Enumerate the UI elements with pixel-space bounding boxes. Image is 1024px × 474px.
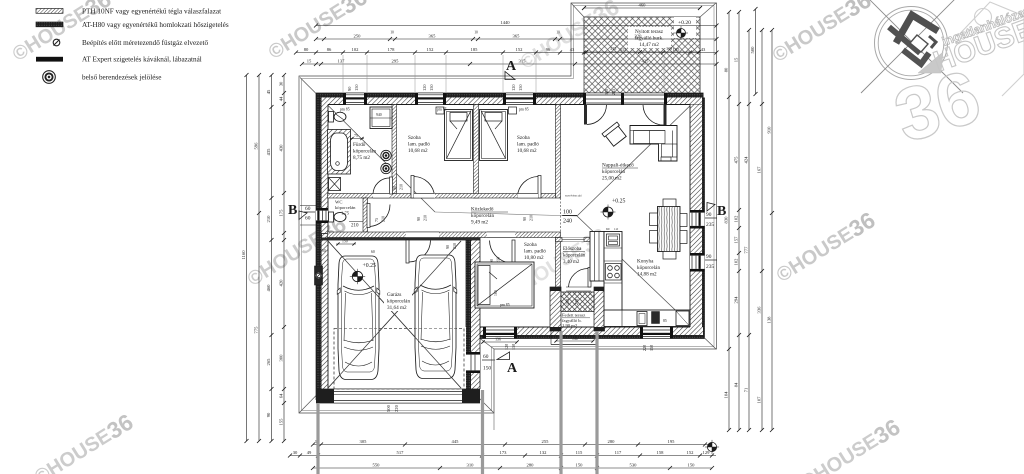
svg-text:500: 500	[750, 46, 755, 54]
svg-text:210: 210	[574, 299, 579, 305]
svg-text:1160: 1160	[241, 250, 246, 260]
svg-text:178: 178	[388, 47, 396, 52]
svg-text:130: 130	[572, 337, 578, 341]
svg-text:336: 336	[756, 306, 761, 314]
svg-text:Fürdő: Fürdő	[353, 142, 366, 148]
svg-text:102: 102	[733, 258, 738, 266]
svg-text:60: 60	[371, 250, 375, 254]
svg-text:75: 75	[374, 218, 379, 222]
svg-text:129: 129	[703, 450, 711, 455]
svg-text:10: 10	[556, 31, 560, 35]
svg-text:102: 102	[352, 47, 360, 52]
svg-text:A: A	[506, 59, 517, 74]
svg-text:köporcelán: köporcelán	[563, 254, 586, 259]
svg-text:320: 320	[604, 89, 609, 95]
svg-text:460: 460	[639, 2, 647, 7]
svg-text:71: 71	[743, 387, 748, 392]
svg-text:64: 64	[278, 393, 283, 398]
svg-text:240: 240	[563, 219, 572, 225]
svg-text:Szoba: Szoba	[408, 135, 421, 141]
svg-text:104: 104	[723, 391, 728, 399]
svg-text:köporcelán: köporcelán	[353, 149, 376, 155]
svg-text:173: 173	[500, 450, 508, 455]
svg-text:Közlekedő: Közlekedő	[471, 207, 494, 213]
svg-text:596: 596	[253, 142, 258, 150]
svg-text:14,47 m2: 14,47 m2	[639, 42, 659, 48]
svg-text:152: 152	[516, 47, 524, 52]
svg-text:155: 155	[278, 418, 283, 426]
svg-text:Szoba: Szoba	[524, 242, 537, 248]
svg-text:A: A	[507, 361, 518, 376]
svg-text:150: 150	[511, 344, 516, 350]
svg-text:102: 102	[733, 215, 738, 223]
svg-text:96: 96	[546, 47, 551, 52]
svg-text:25,00 m2: 25,00 m2	[602, 176, 622, 182]
svg-text:85: 85	[663, 319, 667, 323]
svg-text:90: 90	[445, 245, 450, 249]
svg-text:lam. padló: lam. padló	[408, 142, 430, 148]
svg-text:90: 90	[706, 212, 712, 218]
svg-text:152: 152	[427, 47, 435, 52]
svg-text:420: 420	[278, 279, 283, 287]
svg-text:8,75 m2: 8,75 m2	[353, 155, 370, 161]
svg-text:136: 136	[495, 338, 501, 342]
svg-text:157: 157	[733, 236, 738, 244]
svg-text:belső berendezések jelölése: belső berendezések jelölése	[82, 74, 161, 82]
svg-text:220: 220	[642, 345, 647, 351]
svg-text:pm 85: pm 85	[500, 303, 510, 307]
svg-text:60: 60	[606, 227, 610, 231]
svg-text:10: 10	[390, 31, 394, 35]
svg-text:80: 80	[304, 47, 309, 52]
svg-text:60: 60	[305, 206, 311, 212]
svg-text:235: 235	[706, 222, 714, 228]
svg-text:435: 435	[266, 148, 271, 156]
svg-text:365: 365	[513, 33, 521, 38]
svg-text:AT-H80 vagy egyenértékű homlok: AT-H80 vagy egyenértékű homlokzati hőszi…	[82, 21, 229, 29]
svg-text:60: 60	[305, 216, 311, 222]
svg-text:775: 775	[253, 326, 258, 334]
svg-text:köporcelán: köporcelán	[387, 299, 410, 305]
svg-text:777: 777	[743, 246, 748, 254]
svg-text:910: 910	[766, 126, 771, 134]
svg-text:150: 150	[688, 462, 696, 467]
svg-text:150: 150	[429, 84, 434, 91]
svg-text:10,80 m2: 10,80 m2	[524, 255, 544, 261]
svg-text:210: 210	[266, 215, 271, 223]
svg-text:31,64 m2: 31,64 m2	[387, 305, 407, 311]
svg-text:75: 75	[354, 134, 358, 138]
svg-text:49: 49	[307, 450, 312, 455]
svg-text:550: 550	[373, 462, 381, 467]
svg-text:305: 305	[360, 439, 368, 444]
svg-text:137: 137	[338, 58, 346, 63]
svg-text:105: 105	[673, 47, 681, 52]
svg-text:lam. padló: lam. padló	[524, 249, 546, 255]
svg-text:43: 43	[570, 47, 575, 52]
svg-text:szerelvény ajtó: szerelvény ajtó	[565, 195, 582, 198]
svg-text:150: 150	[518, 84, 523, 91]
svg-text:120: 120	[422, 84, 427, 91]
svg-text:117: 117	[615, 450, 622, 455]
svg-text:Nappali-étkező: Nappali-étkező	[602, 163, 634, 169]
svg-text:132: 132	[540, 450, 548, 455]
svg-text:14,88 m2: 14,88 m2	[637, 272, 657, 278]
svg-text:235: 235	[611, 89, 616, 95]
svg-text:107: 107	[756, 396, 761, 404]
svg-text:PTH 10NF vagy egyenértékű tégl: PTH 10NF vagy egyenértékű tégla válaszfa…	[82, 7, 221, 15]
svg-text:940: 940	[376, 113, 382, 117]
svg-text:150: 150	[342, 240, 348, 244]
svg-text:152: 152	[687, 450, 695, 455]
svg-text:Beépítés előtt méretezendő füs: Beépítés előtt méretezendő füstgáz elvez…	[82, 39, 209, 47]
svg-text:WC: WC	[335, 200, 342, 205]
svg-text:Konyha: Konyha	[637, 259, 654, 265]
svg-text:517: 517	[397, 450, 405, 455]
svg-text:210: 210	[423, 215, 428, 221]
svg-text:530: 530	[630, 462, 638, 467]
svg-text:44: 44	[278, 96, 283, 101]
svg-text:3,40 m2: 3,40 m2	[563, 260, 580, 265]
svg-text:210: 210	[351, 224, 359, 229]
svg-text:115: 115	[576, 450, 583, 455]
svg-text:210: 210	[381, 216, 386, 222]
svg-text:500: 500	[386, 404, 391, 412]
svg-text:195: 195	[668, 439, 676, 444]
svg-text:Fedett terasz: Fedett terasz	[562, 313, 585, 318]
svg-text:119: 119	[666, 46, 672, 51]
svg-text:425: 425	[642, 58, 650, 63]
svg-text:150: 150	[576, 462, 584, 467]
svg-text:175: 175	[278, 209, 283, 217]
svg-text:150: 150	[483, 366, 491, 372]
svg-text:120: 120	[504, 344, 509, 350]
svg-text:15: 15	[733, 57, 738, 62]
svg-text:424: 424	[743, 156, 748, 164]
svg-text:+0.25: +0.25	[612, 199, 626, 205]
svg-text:köporcelán: köporcelán	[602, 169, 625, 175]
svg-text:320: 320	[635, 33, 643, 38]
svg-text:Garázs: Garázs	[387, 292, 401, 298]
svg-text:310: 310	[467, 462, 475, 467]
svg-text:100: 100	[565, 299, 570, 305]
svg-text:315: 315	[519, 58, 527, 63]
svg-text:255: 255	[542, 439, 550, 444]
svg-text:150: 150	[320, 249, 326, 253]
svg-text:9,49 m2: 9,49 m2	[471, 220, 488, 226]
svg-text:430: 430	[278, 144, 283, 152]
svg-text:460: 460	[266, 284, 271, 292]
svg-text:210: 210	[529, 215, 534, 221]
svg-text:15: 15	[307, 58, 312, 63]
svg-text:60: 60	[483, 354, 489, 360]
svg-text:138: 138	[766, 316, 771, 324]
svg-text:160: 160	[494, 290, 498, 296]
svg-text:+0.20: +0.20	[678, 20, 691, 26]
svg-text:90: 90	[416, 217, 421, 221]
svg-text:pm 85: pm 85	[340, 108, 350, 112]
svg-text:300: 300	[278, 354, 283, 362]
svg-text:Előszoba: Előszoba	[563, 247, 582, 252]
svg-text:45: 45	[266, 89, 271, 94]
svg-text:B: B	[717, 204, 726, 219]
svg-text:185: 185	[471, 47, 479, 52]
svg-text:86: 86	[327, 47, 332, 52]
svg-text:445: 445	[452, 439, 460, 444]
svg-text:köporcelán: köporcelán	[335, 205, 356, 210]
svg-text:120: 120	[511, 84, 516, 91]
svg-text:AT Expert szigetelés káváknál,: AT Expert szigetelés káváknál, lábazatná…	[82, 56, 202, 64]
svg-text:90: 90	[706, 254, 712, 260]
svg-text:+0.25: +0.25	[363, 263, 377, 269]
svg-text:210: 210	[399, 184, 404, 190]
svg-text:30: 30	[293, 450, 298, 455]
svg-text:köporcelán: köporcelán	[637, 265, 660, 271]
svg-text:köporcelán: köporcelán	[471, 213, 494, 219]
svg-text:265: 265	[266, 358, 271, 366]
svg-text:10,68 m2: 10,68 m2	[408, 148, 428, 154]
svg-text:90: 90	[522, 217, 527, 221]
svg-text:315: 315	[620, 47, 628, 52]
svg-text:475: 475	[733, 156, 738, 164]
svg-text:158: 158	[657, 450, 665, 455]
svg-text:10: 10	[474, 31, 478, 35]
svg-text:295: 295	[392, 58, 400, 63]
svg-text:294: 294	[733, 296, 738, 304]
svg-text:167: 167	[756, 166, 761, 174]
svg-text:1.0: 1.0	[614, 227, 619, 231]
svg-text:10,68 m2: 10,68 m2	[517, 148, 537, 154]
svg-text:30: 30	[278, 81, 283, 86]
svg-text:90: 90	[392, 186, 397, 190]
svg-text:pm 85: pm 85	[437, 107, 447, 111]
svg-text:43: 43	[701, 47, 706, 52]
svg-text:80: 80	[723, 67, 728, 72]
svg-text:235: 235	[706, 264, 714, 270]
svg-text:90: 90	[266, 412, 271, 417]
svg-text:280: 280	[608, 439, 616, 444]
svg-text:220: 220	[394, 404, 399, 412]
svg-text:250: 250	[354, 33, 362, 38]
svg-text:280: 280	[527, 462, 535, 467]
svg-text:1440: 1440	[500, 20, 510, 25]
svg-text:Szoba: Szoba	[517, 135, 530, 141]
svg-text:315: 315	[610, 46, 616, 51]
svg-text:pm 85: pm 85	[519, 107, 529, 111]
svg-text:365: 365	[429, 33, 437, 38]
svg-text:lam. padló: lam. padló	[517, 142, 539, 148]
svg-text:84: 84	[733, 382, 738, 387]
svg-text:100: 100	[563, 210, 572, 216]
svg-text:B: B	[288, 203, 297, 218]
svg-text:150: 150	[649, 345, 654, 351]
svg-text:150: 150	[354, 84, 359, 91]
